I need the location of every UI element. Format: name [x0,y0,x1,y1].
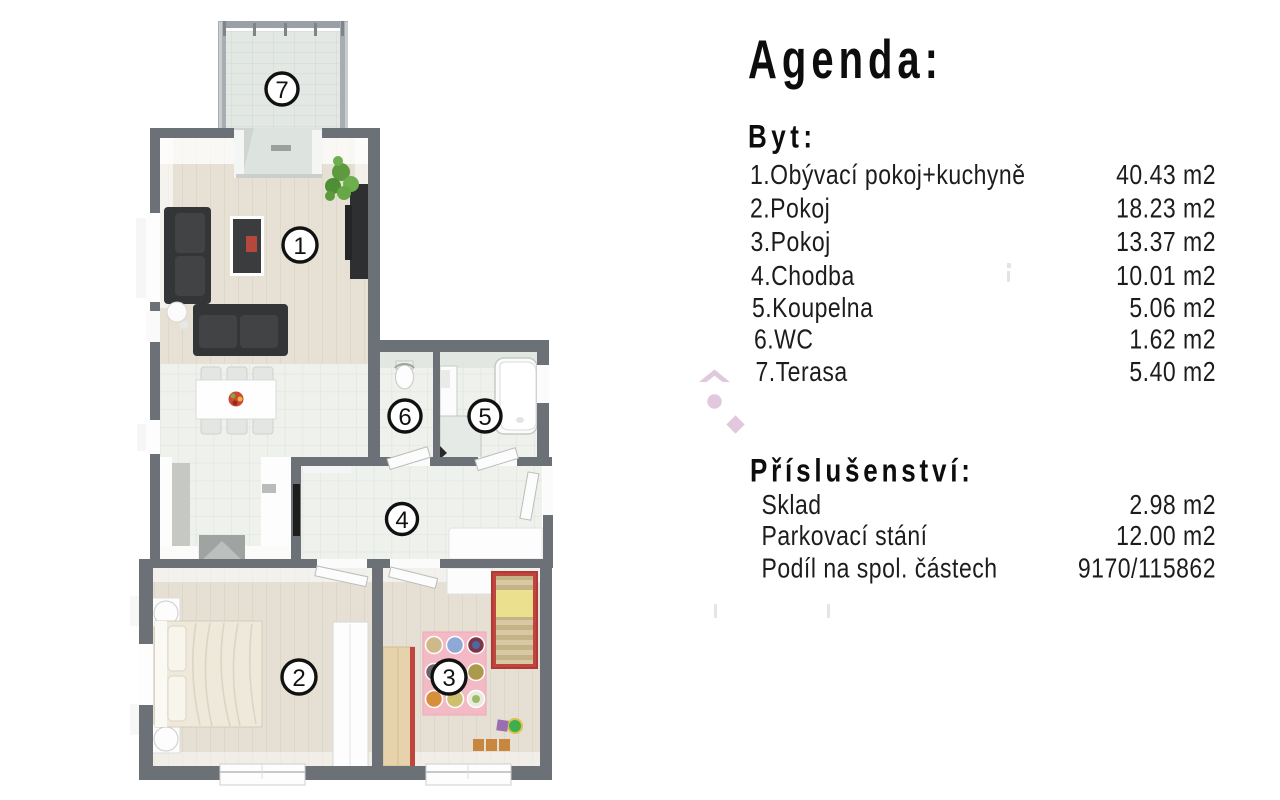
svg-text:4: 4 [395,507,408,534]
svg-text:1: 1 [293,233,306,260]
svg-text:6: 6 [398,404,411,431]
svg-text:7: 7 [275,77,288,104]
svg-text:3: 3 [442,665,455,692]
svg-text:2: 2 [292,665,305,692]
svg-text:5: 5 [478,404,491,431]
